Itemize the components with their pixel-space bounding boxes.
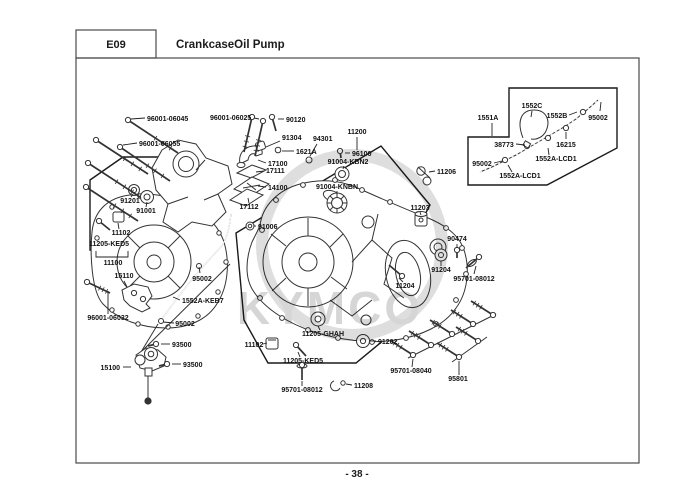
footer-page-number: - 38 -: [345, 469, 368, 480]
part-label-14100: 14100: [268, 185, 288, 192]
part-label-11102: 11102: [112, 230, 131, 237]
part-label-93500: 93500: [183, 362, 203, 369]
bolt: [466, 254, 482, 268]
leader-line: [131, 118, 145, 119]
leader-line: [298, 352, 300, 357]
part-label-11203: 11203: [410, 205, 429, 212]
part-label-95701-08040: 95701-08040: [390, 368, 431, 375]
leader-line: [569, 112, 577, 115]
part-label-91004-kbn2: 91004-KBN2: [328, 159, 369, 166]
part-label-96001-06045: 96001-06045: [147, 116, 188, 123]
part-label-91304: 91304: [282, 135, 302, 142]
leader-line: [346, 384, 352, 385]
part-label-94301: 94301: [313, 136, 333, 143]
part-label-11205-ked5: 11205-KED5: [89, 241, 129, 248]
part-label-96001-06025: 96001-06025: [210, 115, 251, 122]
part-label-16215: 16215: [556, 142, 576, 149]
part-label-17111: 17111: [266, 168, 285, 175]
part-label-11208: 11208: [354, 383, 373, 390]
part-label-96100: 96100: [352, 151, 372, 158]
part-intake-stack: [230, 146, 269, 206]
part-label-17100: 17100: [268, 161, 288, 168]
part-label-91202: 91202: [378, 339, 398, 346]
part-label-1552a-lcd1: 1552A-LCD1: [499, 173, 540, 180]
pump-strainer-tip: [144, 397, 151, 404]
leader-line: [600, 102, 601, 111]
bolt: [299, 362, 304, 380]
leader-line: [531, 111, 532, 117]
leader-line: [548, 148, 549, 155]
part-label-95801: 95801: [448, 376, 468, 383]
part-oil-pump: [135, 348, 166, 405]
part-label-90120: 90120: [286, 117, 306, 124]
leader-line: [412, 359, 413, 367]
part-label-91201: 91201: [120, 198, 140, 205]
leader-line: [266, 141, 280, 147]
part-label-38773: 38773: [494, 142, 514, 149]
leader-line: [474, 266, 476, 274]
part-label-91001: 91001: [136, 208, 156, 215]
part-label-96001-06055: 96001-06055: [139, 141, 180, 148]
leader-line: [508, 165, 512, 172]
part-label-91006: 91006: [258, 224, 278, 231]
part-label-11205-ghah: 11205-GHAH: [302, 331, 344, 338]
part-label-91204: 91204: [431, 267, 451, 274]
part-label-95701-08012: 95701-08012: [453, 276, 494, 283]
part-label-95002: 95002: [588, 115, 608, 122]
part-label-11204: 11204: [395, 283, 414, 290]
part-label-95002: 95002: [192, 276, 212, 283]
bolt: [471, 301, 496, 318]
leader-line: [429, 171, 435, 172]
part-label-91004-knbn: 91004-KNBN: [316, 184, 358, 191]
bolt: [269, 114, 276, 131]
part-label-17112: 17112: [239, 204, 258, 211]
part-label-1552a-lcd1: 1552A-LCD1: [535, 156, 576, 163]
part-label-11102: 11102: [245, 342, 264, 349]
part-label-95701-08012: 95701-08012: [281, 387, 322, 394]
part-label-96001-06032: 96001-06032: [87, 315, 128, 322]
part-label-90474: 90474: [447, 236, 467, 243]
bolt: [451, 310, 476, 327]
part-label-11100: 11100: [104, 260, 123, 267]
part-label-1552b: 1552B: [547, 113, 568, 120]
bolt: [456, 327, 481, 344]
part-label-11206: 11206: [437, 169, 456, 176]
parts-diagram: E09 CrankcaseOil Pump: [0, 0, 700, 495]
bolt: [437, 343, 462, 360]
leader-line: [123, 143, 137, 145]
part-label-95002: 95002: [472, 161, 492, 168]
page-title: CrankcaseOil Pump: [176, 39, 285, 51]
catalog-page: E09 CrankcaseOil Pump: [0, 0, 700, 495]
part-label-1551a: 1551A: [478, 115, 499, 122]
leader-line: [258, 160, 266, 163]
section-code: E09: [106, 39, 126, 51]
part-label-15110: 15110: [114, 273, 133, 280]
part-label-11205-ked5: 11205-KED5: [283, 358, 323, 365]
part-label-93500: 93500: [172, 342, 192, 349]
part-label-1552c: 1552C: [522, 103, 543, 110]
leader-line: [254, 118, 259, 119]
part-cylinder-bracket: [152, 140, 232, 232]
part-label-11200: 11200: [347, 129, 366, 136]
part-label-95002: 95002: [175, 321, 195, 328]
part-label-15100: 15100: [101, 365, 121, 372]
part-label-1621a: 1621A: [296, 149, 317, 156]
part-label-1552a-keb7: 1552A-KEB7: [182, 298, 224, 305]
bolt: [293, 342, 306, 356]
